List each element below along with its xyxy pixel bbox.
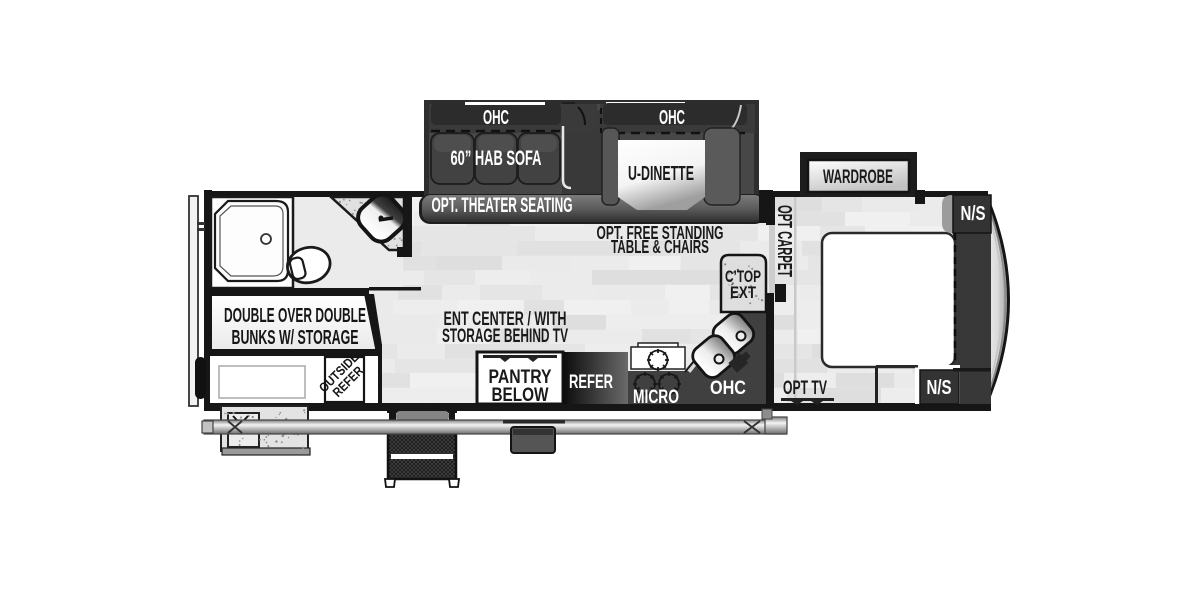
svg-text:OPT. THEATER SEATING: OPT. THEATER SEATING	[432, 194, 573, 217]
svg-text:STORAGE BEHIND TV: STORAGE BEHIND TV	[442, 326, 568, 347]
svg-text:BELOW: BELOW	[492, 385, 549, 406]
svg-text:OPT TV: OPT TV	[783, 378, 827, 399]
svg-text:N/S: N/S	[961, 203, 986, 225]
svg-text:MICRO: MICRO	[633, 387, 679, 408]
svg-text:DOUBLE OVER DOUBLE: DOUBLE OVER DOUBLE	[224, 305, 366, 327]
svg-text:OHC: OHC	[710, 378, 746, 399]
svg-text:U-DINETTE: U-DINETTE	[628, 163, 694, 185]
svg-text:WARDROBE: WARDROBE	[823, 167, 893, 188]
svg-text:OHC: OHC	[483, 107, 509, 129]
svg-text:60” HAB SOFA: 60” HAB SOFA	[451, 147, 542, 170]
svg-text:OHC: OHC	[659, 107, 685, 129]
svg-text:EXT: EXT	[730, 283, 756, 302]
svg-text:TABLE & CHAIRS: TABLE & CHAIRS	[611, 237, 709, 257]
svg-text:OPT CARPET: OPT CARPET	[773, 205, 795, 277]
svg-text:BUNKS W/ STORAGE: BUNKS W/ STORAGE	[232, 327, 359, 349]
svg-text:N/S: N/S	[927, 377, 952, 399]
svg-text:REFER: REFER	[569, 372, 613, 393]
